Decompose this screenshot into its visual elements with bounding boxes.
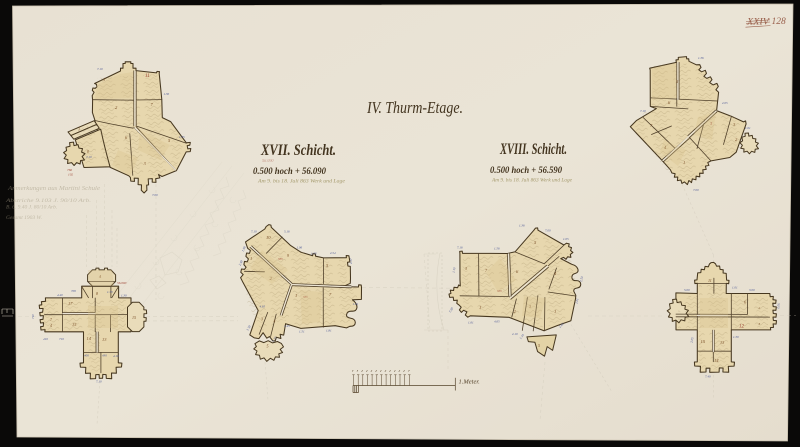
- svg-text:15: 15: [132, 315, 136, 320]
- svg-text:4.10: 4.10: [113, 354, 119, 358]
- svg-text:430: 430: [102, 354, 107, 358]
- svg-text:0.500 hoch + 56.590: 0.500 hoch + 56.590: [490, 166, 562, 176]
- svg-text:3: 3: [759, 322, 761, 326]
- svg-text:7.00: 7.00: [693, 188, 699, 192]
- svg-text:2.05: 2.05: [722, 101, 728, 105]
- svg-text:Anmerkungen aus Martini Schule: Anmerkungen aus Martini Schule: [7, 186, 101, 192]
- svg-text:1.01: 1.01: [732, 286, 738, 290]
- svg-text:2: 2: [759, 306, 761, 310]
- svg-text:1.01: 1.01: [745, 126, 751, 130]
- svg-text:1: 1: [295, 293, 297, 298]
- svg-text:XVIII. Schicht.: XVIII. Schicht.: [499, 141, 567, 158]
- svg-text:7.10: 7.10: [86, 155, 92, 159]
- svg-text:1.70: 1.70: [107, 290, 113, 294]
- svg-text:4.65: 4.65: [260, 305, 266, 309]
- svg-text:700: 700: [71, 289, 76, 293]
- svg-text:1.51: 1.51: [299, 330, 305, 334]
- svg-text:14: 14: [714, 358, 719, 363]
- svg-text:710: 710: [31, 314, 35, 319]
- svg-text:1.05: 1.05: [563, 237, 569, 241]
- svg-text:1.30: 1.30: [121, 294, 127, 298]
- svg-text:1: 1: [250, 256, 252, 261]
- svg-text:1.45: 1.45: [284, 324, 290, 328]
- svg-text:4: 4: [274, 320, 276, 324]
- svg-text:3.00: 3.00: [749, 288, 755, 292]
- svg-text:1.56: 1.56: [494, 247, 500, 251]
- svg-text:3: 3: [261, 318, 263, 322]
- svg-text:7.00: 7.00: [152, 193, 158, 197]
- svg-text:7.16: 7.16: [457, 246, 463, 250]
- svg-text:Gesamt 1903 W.: Gesamt 1903 W.: [6, 215, 42, 221]
- svg-text:12: 12: [739, 325, 745, 330]
- svg-text:1.61: 1.61: [353, 302, 359, 306]
- svg-text:102: 102: [68, 173, 73, 177]
- svg-text:11: 11: [145, 74, 150, 79]
- svg-text:8: 8: [87, 150, 89, 154]
- svg-text:7.40: 7.40: [705, 375, 711, 379]
- svg-text:5.00: 5.00: [684, 288, 690, 292]
- svg-text:4.40: 4.40: [57, 293, 63, 297]
- svg-text:1.36: 1.36: [519, 224, 525, 228]
- svg-text:IV. Thurm-Etage.: IV. Thurm-Etage.: [366, 98, 463, 117]
- svg-text:1.30: 1.30: [733, 335, 739, 339]
- svg-text:1.Meter.: 1.Meter.: [459, 379, 481, 386]
- svg-text:Am 9. bis 18. Juli 863 Werk un: Am 9. bis 18. Juli 863 Werk und Lage: [257, 179, 346, 185]
- svg-text:710: 710: [59, 337, 64, 341]
- svg-text:0.500 hoch + 56.090: 0.500 hoch + 56.090: [253, 167, 326, 177]
- svg-text:7.10: 7.10: [251, 230, 257, 234]
- svg-text:3: 3: [78, 128, 80, 132]
- svg-text:15: 15: [701, 339, 706, 344]
- svg-text:5.16: 5.16: [284, 230, 290, 234]
- svg-text:1.30: 1.30: [164, 92, 170, 96]
- svg-text:1.05: 1.05: [311, 252, 317, 256]
- svg-text:7.00: 7.00: [545, 229, 551, 233]
- svg-text:8: 8: [96, 291, 98, 296]
- svg-text:4.65: 4.65: [494, 320, 500, 324]
- svg-text:2.37: 2.37: [349, 258, 353, 264]
- svg-text:1: 1: [479, 305, 481, 310]
- svg-text:5: 5: [267, 344, 269, 349]
- svg-text:1: 1: [554, 309, 556, 314]
- svg-text:3: 3: [465, 266, 467, 271]
- svg-text:11: 11: [708, 278, 712, 283]
- svg-text:5: 5: [538, 343, 540, 348]
- svg-text:B. 6. 9.40 J. 80/10: B. 6. 9.40 J. 80/10 Arb.: [6, 204, 57, 211]
- svg-text:9: 9: [287, 253, 289, 258]
- svg-text:333: 333: [278, 257, 283, 261]
- svg-text:56.090: 56.090: [117, 281, 127, 285]
- svg-text:1.81: 1.81: [326, 329, 332, 333]
- svg-text:2.10: 2.10: [512, 332, 518, 336]
- svg-text:Abstriche 9.103 J. 90/10 A: Abstriche 9.103 J. 90/10 Arb.: [5, 198, 91, 204]
- svg-text:4: 4: [50, 324, 52, 328]
- svg-text:13: 13: [720, 340, 724, 345]
- svg-text:7.10: 7.10: [96, 380, 102, 384]
- svg-text:1: 1: [683, 160, 685, 165]
- svg-text:2.54: 2.54: [330, 251, 336, 255]
- svg-text:128: 128: [772, 17, 787, 27]
- svg-text:400: 400: [84, 354, 89, 358]
- svg-text:1.05: 1.05: [179, 135, 185, 139]
- svg-text:10: 10: [266, 235, 271, 240]
- svg-text:XVII. Schicht.: XVII. Schicht.: [260, 142, 336, 159]
- svg-text:7.10: 7.10: [97, 67, 103, 71]
- svg-text:Am 9. bis 18. Juli 863 Werk un: Am 9. bis 18. Juli 863 Werk und Lage: [491, 178, 573, 184]
- svg-text:1.36: 1.36: [698, 56, 704, 60]
- svg-text:1.06: 1.06: [297, 246, 303, 250]
- svg-text:760: 760: [67, 168, 72, 172]
- svg-text:410: 410: [43, 337, 48, 341]
- svg-text:7.10: 7.10: [640, 109, 646, 113]
- svg-text:1.61: 1.61: [468, 321, 474, 325]
